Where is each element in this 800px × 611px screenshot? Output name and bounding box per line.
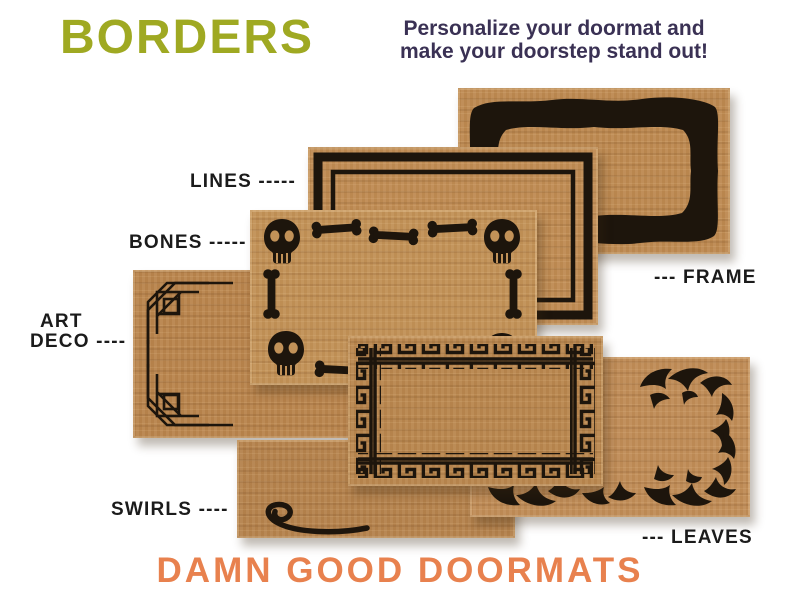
page-title: BORDERS [60,10,314,65]
doormat-borders-promo: BORDERS Personalize your doormat and mak… [0,0,800,611]
doormat-greek-key [348,336,603,486]
label-bones: BONES ----- [129,232,247,254]
label-art-deco-line2: DECO ---- [30,332,126,352]
label-swirls: SWIRLS ---- [111,499,229,521]
label-art-deco-line1: ART [30,312,126,332]
label-art-deco: ART DECO ---- [30,312,126,352]
brand-name: DAMN GOOD DOORMATS [0,551,800,591]
subtitle-line-2: make your doorstep stand out! [352,40,756,63]
label-frame: --- FRAME [654,267,757,289]
label-leaves: --- LEAVES [642,527,753,549]
subtitle-line-1: Personalize your doormat and [352,17,756,40]
label-lines: LINES ----- [190,171,296,193]
greek-key-border-icon [348,336,603,486]
subtitle: Personalize your doormat and make your d… [352,17,756,63]
